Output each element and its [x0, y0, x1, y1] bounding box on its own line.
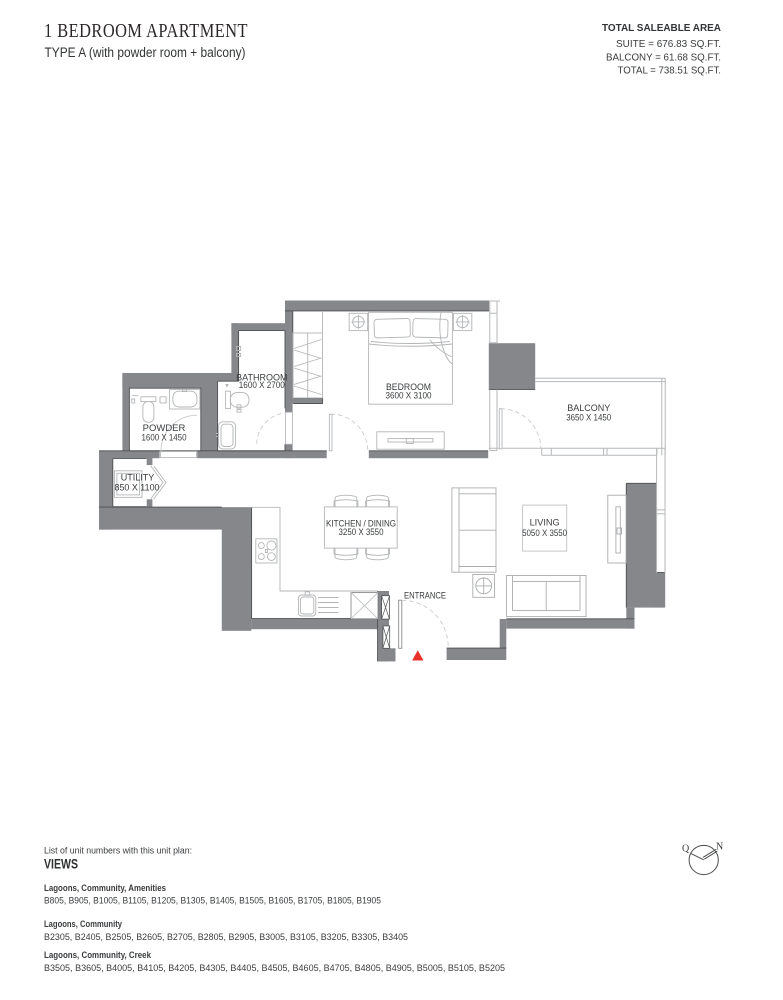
- svg-text:1 BEDROOM APARTMENT: 1 BEDROOM APARTMENT: [44, 20, 248, 42]
- svg-text:ENTRANCE: ENTRANCE: [404, 591, 446, 601]
- svg-text:Lagoons, Community, Creek: Lagoons, Community, Creek: [44, 950, 152, 960]
- svg-text:850 X 1100: 850 X 1100: [115, 482, 160, 492]
- svg-text:B805, B905, B1005, B1105, B120: B805, B905, B1005, B1105, B1205, B1305, …: [44, 896, 381, 907]
- svg-text:Q: Q: [682, 844, 690, 855]
- svg-text:TOTAL = 738.51 SQ.FT.: TOTAL = 738.51 SQ.FT.: [618, 66, 722, 77]
- svg-text:3650 X 1450: 3650 X 1450: [566, 413, 611, 423]
- svg-text:5050 X 3550: 5050 X 3550: [522, 528, 567, 539]
- svg-text:TOTAL SALEABLE AREA: TOTAL SALEABLE AREA: [602, 23, 722, 34]
- svg-text:1600 X 1450: 1600 X 1450: [142, 433, 187, 444]
- svg-text:Lagoons, Community, Amenities: Lagoons, Community, Amenities: [44, 883, 166, 893]
- svg-text:1600 X 2700: 1600 X 2700: [239, 380, 285, 390]
- svg-text:B3505, B3605, B4005, B4105, B4: B3505, B3605, B4005, B4105, B4205, B4305…: [44, 963, 505, 974]
- svg-text:SUITE = 676.83 SQ.FT.: SUITE = 676.83 SQ.FT.: [616, 39, 721, 50]
- svg-text:UTILITY: UTILITY: [121, 473, 155, 483]
- svg-text:BALCONY = 61.68 SQ.FT.: BALCONY = 61.68 SQ.FT.: [606, 52, 721, 63]
- svg-text:3600 X 3100: 3600 X 3100: [386, 391, 432, 402]
- svg-text:3250 X 3550: 3250 X 3550: [339, 527, 384, 538]
- svg-text:TYPE A (with powder room + bal: TYPE A (with powder room + balcony): [45, 45, 246, 60]
- svg-text:N: N: [716, 842, 723, 853]
- svg-text:BALCONY: BALCONY: [567, 403, 610, 413]
- svg-text:List of unit numbers with this: List of unit numbers with this unit plan…: [44, 846, 192, 856]
- svg-text:VIEWS: VIEWS: [44, 857, 78, 872]
- svg-text:Lagoons, Community: Lagoons, Community: [44, 919, 122, 929]
- svg-text:B2305, B2405, B2505, B2605, B2: B2305, B2405, B2505, B2605, B2705, B2805…: [44, 932, 408, 943]
